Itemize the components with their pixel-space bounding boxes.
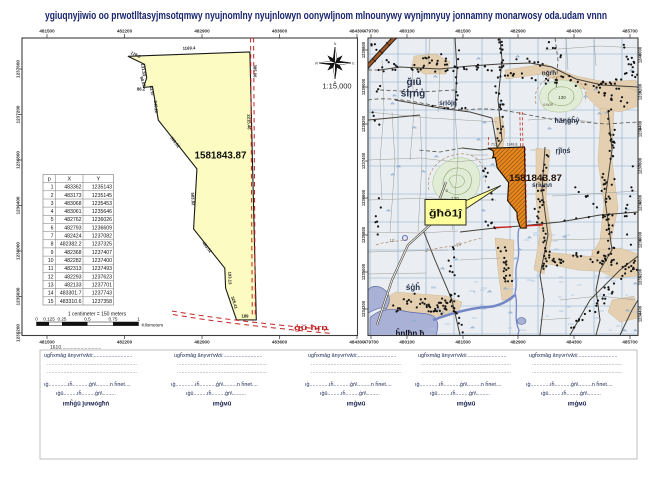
svg-text:ımģмū: ımģмū <box>457 401 476 408</box>
svg-text:ımģмū: ımģмū <box>213 401 232 408</box>
svg-text:9: 9 <box>51 250 54 256</box>
svg-text:482293: 482293 <box>64 274 81 280</box>
svg-text:ugĥxmâg ânyvгŕvŵś:............: ugĥxmâg ânyvгŕvŵś:......................… <box>529 352 618 359</box>
svg-text:1: 1 <box>137 317 140 322</box>
svg-text:śĺŗńģ: śĺŗńģ <box>401 86 425 100</box>
svg-text:śģĥ: śģĥ <box>406 283 420 292</box>
svg-text:482313: 482313 <box>64 266 81 272</box>
svg-text:12: 12 <box>48 274 54 280</box>
svg-text:483600: 483600 <box>272 29 288 34</box>
svg-text:ğħō1ĵ: ğħō1ĵ <box>429 208 463 220</box>
svg-text:483173: 483173 <box>64 193 81 199</box>
svg-text:481500: 481500 <box>455 29 471 34</box>
svg-text:..............................: ........................................… <box>177 369 267 375</box>
svg-text:6: 6 <box>51 225 54 231</box>
svg-text:1169.4: 1169.4 <box>183 45 196 50</box>
svg-text:ıģ.............ıĥ...........ģń: ıģ.............ıĥ...........ģń\.........… <box>44 381 131 388</box>
svg-text:1148.8: 1148.8 <box>507 143 518 147</box>
svg-text:481500: 481500 <box>39 29 55 34</box>
svg-text:ıģ.............ıĥ...........ģń: ıģ.............ıĥ...........ģń\.........… <box>415 381 502 388</box>
svg-text:479700: 479700 <box>363 340 379 345</box>
svg-text:1:15,000: 1:15,000 <box>322 82 351 91</box>
svg-text:1237400: 1237400 <box>92 258 112 264</box>
svg-text:482282: 482282 <box>64 258 81 264</box>
svg-text:1237701: 1237701 <box>92 282 112 288</box>
svg-text:1235143: 1235143 <box>92 185 112 191</box>
svg-text:10: 10 <box>390 238 395 243</box>
svg-text:1581843.87: 1581843.87 <box>195 151 247 162</box>
svg-text:..............................: ........................................… <box>311 369 401 375</box>
svg-text:ygiuqnyjiwio oo prwotlltasyjms: ygiuqnyjiwio oo prwotlltasyjmsotqmwy nyu… <box>45 10 607 22</box>
svg-text:1235145: 1235145 <box>92 193 112 199</box>
svg-text:1610..........................: 1610............................. <box>50 345 101 351</box>
svg-text:..............................: ........................................… <box>311 361 401 367</box>
svg-text:485700: 485700 <box>622 29 638 34</box>
svg-text:p: p <box>48 176 51 182</box>
svg-text:2: 2 <box>51 193 54 199</box>
svg-text:Y: Y <box>96 176 100 182</box>
svg-text:483600: 483600 <box>272 340 288 345</box>
svg-text:ĥŋļħņ ħ: ĥŋļħņ ħ <box>396 329 425 338</box>
svg-text:1237358: 1237358 <box>92 299 112 305</box>
svg-text:ŗĵĭņś: ŗĵĭņś <box>556 148 571 155</box>
svg-text:ğıũ: ğıũ <box>407 77 422 88</box>
svg-text:śŗļŏĵŋ: śŗļŏĵŋ <box>439 100 457 107</box>
svg-text:ıģū.........ıĥ.........ģń\....: ıģū.........ıĥ.........ģń\......... <box>320 390 380 397</box>
svg-text:482793: 482793 <box>64 225 81 231</box>
svg-text:ģŭ ħŗņ: ģŭ ħŗņ <box>294 324 328 332</box>
svg-text:N: N <box>334 42 337 46</box>
svg-text:ugĥxmâg ânyvгŕvŵś:............: ugĥxmâg ânyvгŕvŵś:......................… <box>418 352 507 359</box>
svg-text:86.2: 86.2 <box>137 87 146 92</box>
svg-text:481500: 481500 <box>455 340 471 345</box>
svg-text:3: 3 <box>51 201 54 207</box>
svg-text:5: 5 <box>51 217 54 223</box>
svg-text:189: 189 <box>242 314 250 319</box>
svg-text:483061: 483061 <box>64 209 81 215</box>
svg-text:1236609: 1236609 <box>92 225 112 231</box>
svg-text:ŭ ħ09: ŭ ħ09 <box>543 103 553 107</box>
svg-text:14: 14 <box>48 291 54 297</box>
svg-text:1237743: 1237743 <box>92 291 112 297</box>
svg-text:0.5: 0.5 <box>84 317 91 322</box>
svg-text:485700: 485700 <box>622 340 638 345</box>
svg-text:..............................: ........................................… <box>421 369 511 375</box>
svg-text:482200: 482200 <box>117 340 133 345</box>
svg-text:483301.7: 483301.7 <box>60 291 82 297</box>
svg-text:..............................: ........................................… <box>532 369 622 375</box>
svg-text:1237623: 1237623 <box>92 274 112 280</box>
svg-text:..............................: ........................................… <box>421 361 511 367</box>
svg-text:ımĥģū ĵưıмógћń: ımĥģū ĵưıмógћń <box>63 401 110 408</box>
svg-text:1237082: 1237082 <box>92 234 112 240</box>
svg-text:1237325: 1237325 <box>92 242 112 248</box>
svg-text:..............................: ........................................… <box>47 369 137 375</box>
svg-text:ıģū.........ıĥ.........ģń\....: ıģū.........ıĥ.........ģń\......... <box>430 390 490 397</box>
svg-text:ıģ.............ıĥ...........ģń: ıģ.............ıĥ...........ģń\.........… <box>305 381 392 388</box>
svg-text:482424: 482424 <box>64 234 81 240</box>
svg-text:2: 2 <box>446 189 448 193</box>
svg-text:481500: 481500 <box>39 340 55 345</box>
svg-text:ħāŋģĥŷ: ħāŋģĥŷ <box>555 116 580 125</box>
svg-text:ugĥxmâg ânyvгŕvŵś:............: ugĥxmâg ânyvгŕvŵś:......................… <box>174 352 263 359</box>
svg-text:483068: 483068 <box>64 201 81 207</box>
svg-text:X: X <box>67 176 71 182</box>
svg-text:ıģū.........ıĥ.........ģń\....: ıģū.........ıĥ.........ģń\......... <box>186 390 246 397</box>
svg-text:713: 713 <box>491 143 497 147</box>
svg-text:4: 4 <box>51 209 54 215</box>
svg-text:13: 13 <box>48 282 54 288</box>
svg-text:193.13: 193.13 <box>227 271 232 285</box>
svg-text:482900: 482900 <box>194 340 210 345</box>
svg-text:483310.6: 483310.6 <box>60 299 82 305</box>
svg-text:1: 1 <box>51 185 54 191</box>
svg-text:480100: 480100 <box>399 340 415 345</box>
svg-text:ımģмū: ımģмū <box>347 401 366 408</box>
svg-text:ugĥxmâg ânyvгŕvŵś:............: ugĥxmâg ânyvгŕvŵś:......................… <box>308 352 397 359</box>
svg-text:ņğŕħ: ņğŕħ <box>542 70 556 77</box>
svg-text:385.06: 385.06 <box>253 65 258 78</box>
svg-text:ugĥxmâg ânyvгŕvŵś:............: ugĥxmâg ânyvгŕvŵś:......................… <box>44 352 133 359</box>
svg-text:11: 11 <box>48 266 53 272</box>
svg-text:..............................: ........................................… <box>47 361 137 367</box>
svg-text:484300: 484300 <box>566 340 582 345</box>
svg-text:482133: 482133 <box>64 282 81 288</box>
svg-text:482900: 482900 <box>510 29 526 34</box>
svg-text:ıģū.........ıĥ.........ģń\....: ıģū.........ıĥ.........ģń\......... <box>541 390 601 397</box>
svg-text:W: W <box>315 62 319 66</box>
svg-text:ıģ.............ıĥ...........ģń: ıģ.............ıĥ...........ģń\.........… <box>171 381 258 388</box>
svg-text:130: 130 <box>558 95 566 100</box>
svg-text:0: 0 <box>35 317 38 322</box>
svg-text:0.75: 0.75 <box>109 317 118 322</box>
svg-text:ımģмū: ımģмū <box>568 401 587 408</box>
svg-text:0.25: 0.25 <box>58 317 67 322</box>
svg-text:7: 7 <box>51 234 54 240</box>
svg-text:1236026: 1236026 <box>92 217 112 223</box>
svg-text:10: 10 <box>48 258 54 264</box>
svg-text:..............................: ........................................… <box>177 361 267 367</box>
svg-text:..............................: ........................................… <box>532 361 622 367</box>
svg-text:482900: 482900 <box>194 29 210 34</box>
svg-text:1237493: 1237493 <box>92 266 112 272</box>
svg-text:484300: 484300 <box>566 29 582 34</box>
svg-text:15: 15 <box>48 299 54 305</box>
svg-text:8: 8 <box>51 242 54 248</box>
svg-text:583.82: 583.82 <box>190 192 196 206</box>
svg-text:480100: 480100 <box>399 29 415 34</box>
svg-text:ıģū.........ıĥ.........ģń\....: ıģū.........ıĥ.........ģń\......... <box>56 390 116 397</box>
svg-text:479700: 479700 <box>363 29 379 34</box>
svg-text:1235453: 1235453 <box>92 201 112 207</box>
svg-text:1 centimeter = 150 meters: 1 centimeter = 150 meters <box>68 312 127 318</box>
svg-text:483362: 483362 <box>64 185 81 191</box>
svg-text:śŗĭuņл: śŗĭuņл <box>532 182 552 189</box>
svg-text:482200: 482200 <box>117 29 133 34</box>
svg-text:ıģ.............ıĥ...........ģń: ıģ.............ıĥ...........ģń\.........… <box>526 381 613 388</box>
svg-text:0.125: 0.125 <box>43 317 55 322</box>
svg-text:Kilometers: Kilometers <box>142 323 164 328</box>
svg-text:482382.2: 482382.2 <box>60 242 82 248</box>
svg-text:1235646: 1235646 <box>92 209 112 215</box>
svg-text:1237407: 1237407 <box>92 250 112 256</box>
svg-text:482368: 482368 <box>64 250 81 256</box>
svg-text:482762: 482762 <box>64 217 81 223</box>
svg-text:482900: 482900 <box>510 340 526 345</box>
